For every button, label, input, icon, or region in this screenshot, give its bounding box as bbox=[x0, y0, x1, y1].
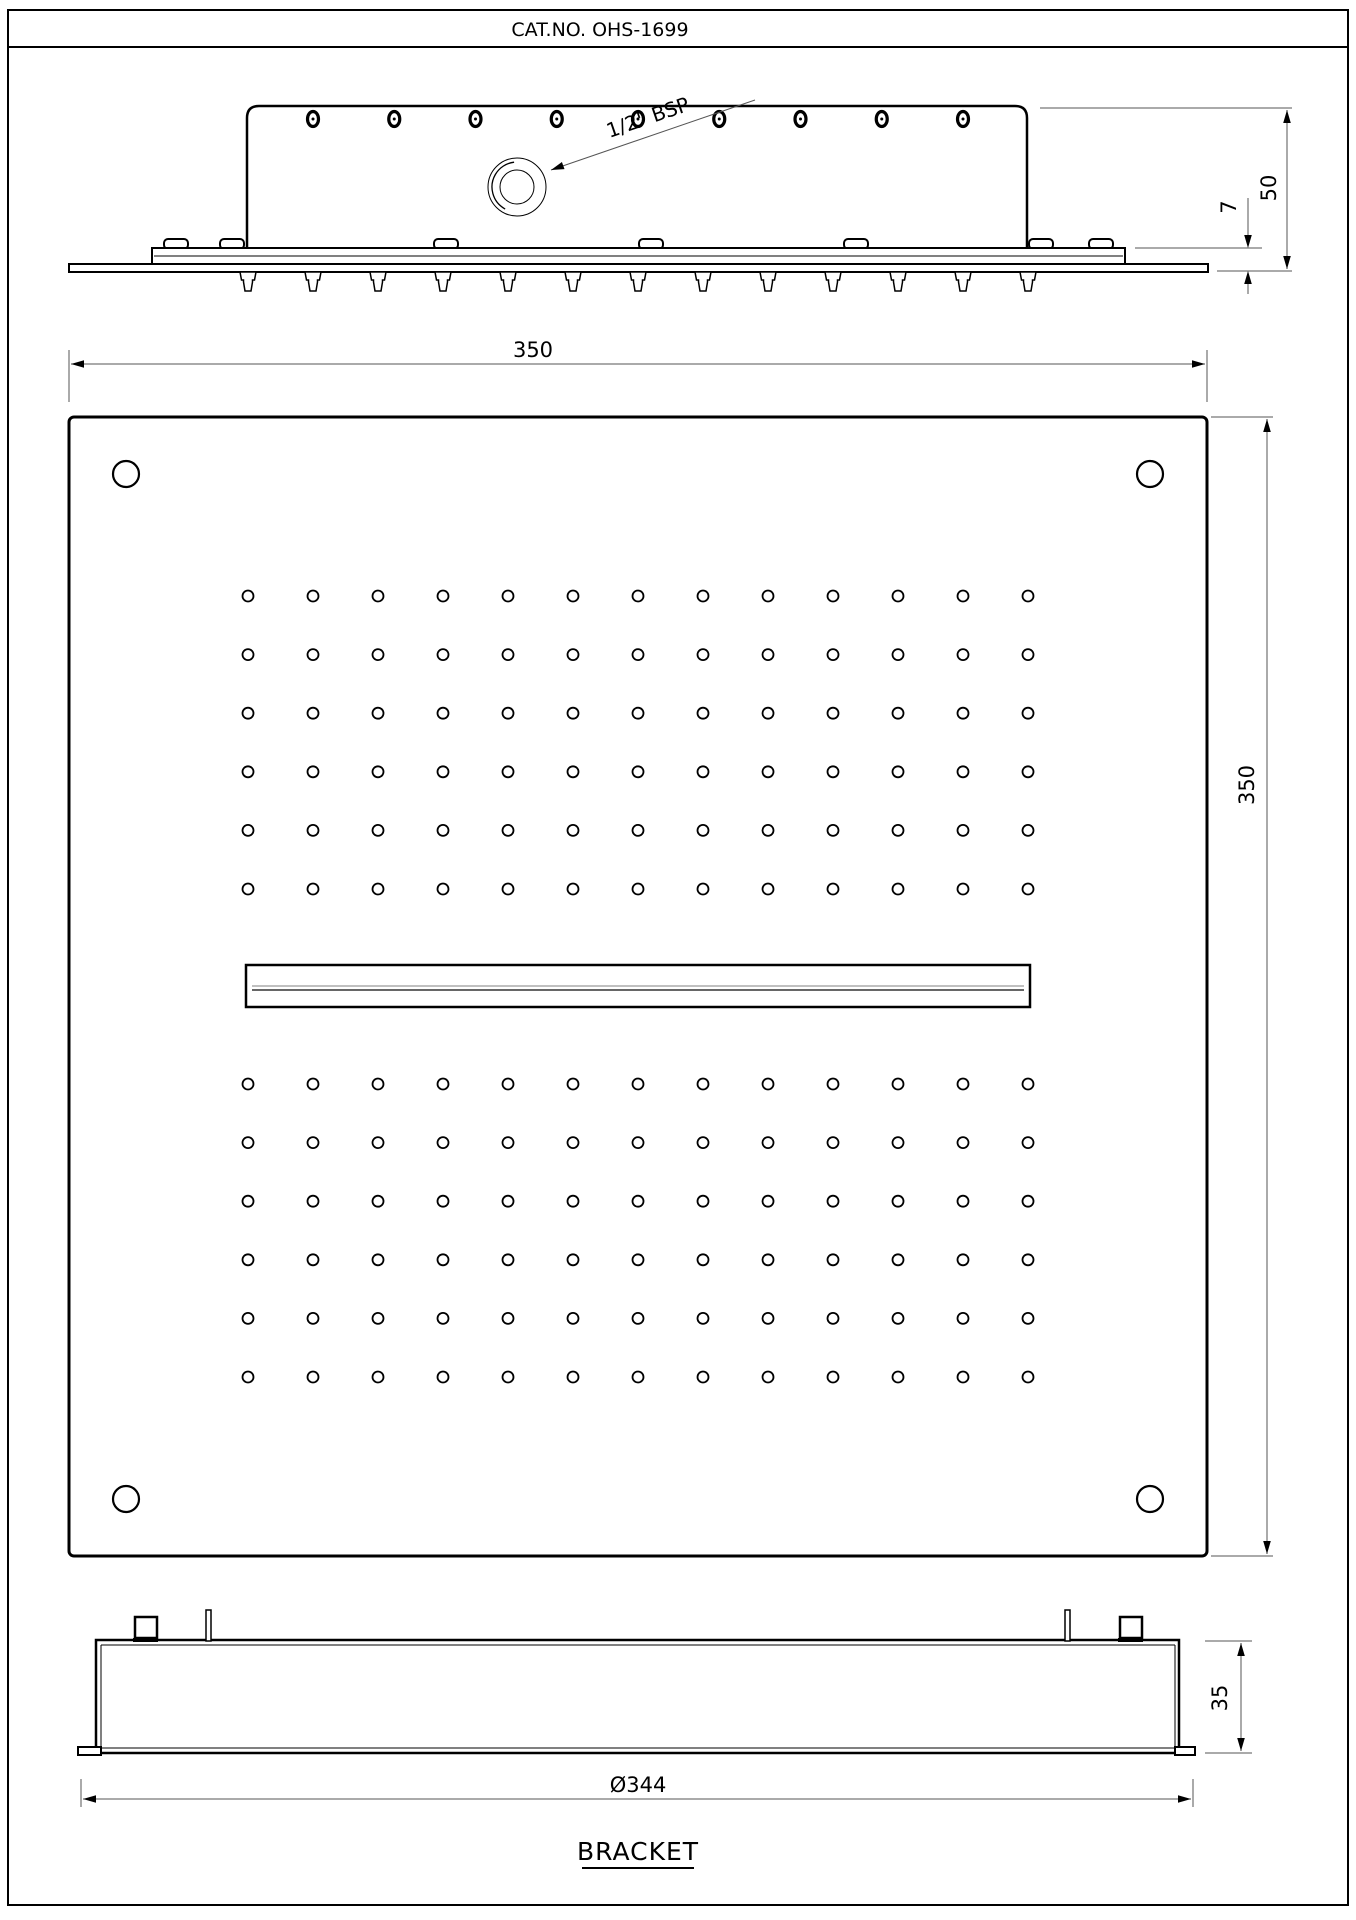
dimension-arrowhead bbox=[71, 360, 84, 368]
nozzle-hole bbox=[958, 766, 969, 777]
nozzle-hole bbox=[438, 649, 449, 660]
nozzle-hole bbox=[373, 591, 384, 602]
nozzle-hole bbox=[1023, 766, 1034, 777]
nozzle-hole bbox=[698, 1372, 709, 1383]
nozzle-profile bbox=[305, 272, 321, 291]
nozzle-hole bbox=[828, 649, 839, 660]
nozzle-hole bbox=[373, 708, 384, 719]
nozzle-profile bbox=[370, 272, 386, 291]
nozzle-hole bbox=[633, 766, 644, 777]
nozzle-hole bbox=[828, 766, 839, 777]
nozzle-hole bbox=[1023, 1079, 1034, 1090]
nozzle-hole bbox=[568, 591, 579, 602]
nozzle-hole bbox=[373, 1137, 384, 1148]
nozzle-hole bbox=[308, 1313, 319, 1324]
nozzle-hole bbox=[633, 825, 644, 836]
nozzle-hole bbox=[243, 1313, 254, 1324]
nozzle-hole bbox=[438, 825, 449, 836]
nozzle-hole bbox=[958, 591, 969, 602]
nozzle-row bbox=[240, 272, 1036, 291]
nozzle-hole bbox=[633, 1196, 644, 1207]
dimension-arrowhead bbox=[1244, 271, 1252, 284]
plan-height-dimension: 350 bbox=[1211, 417, 1273, 1556]
nozzle-hole bbox=[893, 766, 904, 777]
nozzle-profile bbox=[565, 272, 581, 291]
nozzle-hole bbox=[568, 766, 579, 777]
nozzle-hole bbox=[828, 825, 839, 836]
nozzle-hole bbox=[763, 708, 774, 719]
bracket-view: 35 Ø344 BRACKET bbox=[78, 1610, 1252, 1868]
nozzle-hole bbox=[373, 1372, 384, 1383]
nozzle-hole bbox=[828, 1079, 839, 1090]
nozzle-hole bbox=[373, 1196, 384, 1207]
nozzle-hole bbox=[503, 591, 514, 602]
dimension-arrowhead bbox=[1244, 235, 1252, 248]
dimension-arrowhead bbox=[1192, 360, 1205, 368]
nozzle-hole bbox=[568, 1137, 579, 1148]
bracket-right-block bbox=[1120, 1617, 1142, 1638]
nozzle-hole bbox=[828, 708, 839, 719]
nozzle-hole bbox=[763, 1079, 774, 1090]
nozzle-hole bbox=[308, 884, 319, 895]
nozzle-profile bbox=[955, 272, 971, 291]
nozzle-hole bbox=[763, 884, 774, 895]
nozzle-hole bbox=[243, 884, 254, 895]
nozzle-hole bbox=[503, 1196, 514, 1207]
nozzle-hole bbox=[633, 1079, 644, 1090]
nozzle-hole bbox=[568, 884, 579, 895]
nozzle-profile bbox=[695, 272, 711, 291]
mounting-slot-center bbox=[718, 118, 721, 121]
nozzle-hole bbox=[568, 1254, 579, 1265]
nozzle-hole bbox=[503, 1079, 514, 1090]
dim-text-dia344: Ø344 bbox=[610, 1773, 667, 1797]
nozzle-hole bbox=[308, 1079, 319, 1090]
nozzle-hole bbox=[763, 1137, 774, 1148]
nozzle-profile bbox=[435, 272, 451, 291]
nozzle-hole bbox=[828, 1313, 839, 1324]
nozzle-hole bbox=[633, 1372, 644, 1383]
dimension-arrowhead bbox=[83, 1795, 96, 1803]
nozzle-hole bbox=[958, 649, 969, 660]
nozzle-hole bbox=[698, 766, 709, 777]
dim-text-50: 50 bbox=[1257, 175, 1281, 202]
nozzle-hole bbox=[373, 1254, 384, 1265]
nozzle-hole bbox=[243, 766, 254, 777]
nozzle-hole bbox=[568, 649, 579, 660]
nozzle-hole bbox=[438, 708, 449, 719]
nozzle-hole bbox=[243, 1079, 254, 1090]
nozzle-hole bbox=[308, 708, 319, 719]
nozzle-hole bbox=[373, 766, 384, 777]
dimension-arrowhead bbox=[1237, 1643, 1245, 1656]
dimension-arrowhead bbox=[1263, 1541, 1271, 1554]
corner-screw-hole bbox=[113, 461, 139, 487]
nozzle-hole bbox=[308, 1196, 319, 1207]
nozzle-profile bbox=[825, 272, 841, 291]
mounting-slot-center bbox=[474, 118, 477, 121]
bracket-caption: BRACKET bbox=[577, 1837, 699, 1866]
nozzle-profile bbox=[630, 272, 646, 291]
dim-text-35: 35 bbox=[1208, 1685, 1232, 1712]
nozzle-hole bbox=[958, 1196, 969, 1207]
nozzle-hole bbox=[698, 591, 709, 602]
mounting-slot-center bbox=[880, 118, 883, 121]
nozzle-hole bbox=[1023, 1372, 1034, 1383]
dimension-arrowhead bbox=[1283, 110, 1291, 123]
nozzle-hole bbox=[503, 1254, 514, 1265]
nozzle-hole bbox=[1023, 1313, 1034, 1324]
bracket-right-pin bbox=[1065, 1610, 1070, 1641]
nozzle-hole bbox=[698, 1079, 709, 1090]
nozzle-hole bbox=[568, 1079, 579, 1090]
mounting-slot-center bbox=[555, 118, 558, 121]
nozzle-hole bbox=[958, 1372, 969, 1383]
nozzle-hole bbox=[438, 1137, 449, 1148]
nozzle-hole bbox=[568, 1313, 579, 1324]
nozzle-hole bbox=[698, 1313, 709, 1324]
mounting-slot-center bbox=[393, 118, 396, 121]
nozzle-hole bbox=[503, 884, 514, 895]
face-plate bbox=[69, 264, 1208, 272]
nozzle-hole bbox=[308, 766, 319, 777]
nozzle-hole bbox=[438, 1313, 449, 1324]
nozzle-profile bbox=[240, 272, 256, 291]
nozzle-hole bbox=[1023, 884, 1034, 895]
nozzle-hole bbox=[698, 1196, 709, 1207]
dimension-arrowhead bbox=[1263, 419, 1271, 432]
nozzle-hole bbox=[828, 1137, 839, 1148]
nozzle-hole bbox=[503, 766, 514, 777]
nozzle-profile bbox=[760, 272, 776, 291]
nozzle-hole bbox=[308, 649, 319, 660]
nozzle-hole bbox=[893, 1313, 904, 1324]
waterfall-slot bbox=[246, 965, 1030, 1007]
nozzle-hole bbox=[568, 708, 579, 719]
nozzle-hole bbox=[373, 825, 384, 836]
nozzle-hole bbox=[763, 1313, 774, 1324]
plan-width-dimension: 350 bbox=[69, 338, 1207, 402]
nozzle-hole bbox=[308, 825, 319, 836]
nozzle-profile bbox=[890, 272, 906, 291]
nozzle-hole bbox=[828, 1254, 839, 1265]
nozzle-hole bbox=[1023, 825, 1034, 836]
bracket-left-pin bbox=[206, 1610, 211, 1641]
nozzle-hole bbox=[698, 1254, 709, 1265]
dim-text-7: 7 bbox=[1217, 200, 1241, 213]
dimension-arrowhead bbox=[1178, 1795, 1191, 1803]
nozzle-hole bbox=[1023, 708, 1034, 719]
nozzle-hole bbox=[633, 1254, 644, 1265]
nozzle-hole bbox=[308, 1372, 319, 1383]
nozzle-hole bbox=[958, 1137, 969, 1148]
nozzle-hole bbox=[503, 1372, 514, 1383]
nozzle-hole bbox=[243, 591, 254, 602]
nozzle-hole bbox=[503, 825, 514, 836]
nozzle-hole bbox=[308, 1137, 319, 1148]
nozzle-hole bbox=[1023, 649, 1034, 660]
nozzle-hole bbox=[633, 708, 644, 719]
nozzle-hole bbox=[243, 1137, 254, 1148]
nozzle-hole bbox=[243, 649, 254, 660]
nozzle-hole bbox=[243, 1254, 254, 1265]
nozzle-hole bbox=[438, 1254, 449, 1265]
nozzle-hole bbox=[958, 708, 969, 719]
nozzle-hole bbox=[1023, 1254, 1034, 1265]
nozzle-hole bbox=[633, 649, 644, 660]
nozzle-hole bbox=[438, 1079, 449, 1090]
nozzle-hole bbox=[373, 649, 384, 660]
nozzle-hole bbox=[633, 884, 644, 895]
nozzle-hole bbox=[373, 1079, 384, 1090]
nozzle-profile bbox=[1020, 272, 1036, 291]
nozzle-hole bbox=[698, 825, 709, 836]
nozzle-hole bbox=[438, 884, 449, 895]
nozzle-hole bbox=[893, 649, 904, 660]
nozzle-hole bbox=[1023, 1196, 1034, 1207]
nozzle-hole bbox=[1023, 1137, 1034, 1148]
nozzle-hole bbox=[308, 591, 319, 602]
bracket-height-dimension: 35 bbox=[1205, 1641, 1252, 1753]
nozzle-hole bbox=[698, 649, 709, 660]
nozzle-hole bbox=[633, 591, 644, 602]
nozzle-hole bbox=[763, 1372, 774, 1383]
nozzle-hole bbox=[373, 884, 384, 895]
nozzle-hole bbox=[958, 1313, 969, 1324]
dimension-arrowhead bbox=[1237, 1738, 1245, 1751]
corner-screw-hole bbox=[1137, 1486, 1163, 1512]
nozzle-hole bbox=[828, 1372, 839, 1383]
corner-screw-hole bbox=[1137, 461, 1163, 487]
nozzle-hole bbox=[893, 708, 904, 719]
mounting-slot-center bbox=[962, 118, 965, 121]
nozzle-hole bbox=[893, 1137, 904, 1148]
dimension-arrowhead bbox=[1283, 256, 1291, 269]
dim-text-height: 350 bbox=[1235, 765, 1259, 805]
nozzle-hole bbox=[1023, 591, 1034, 602]
nozzle-hole bbox=[438, 766, 449, 777]
nozzle-hole bbox=[828, 884, 839, 895]
corner-screw-hole bbox=[113, 1486, 139, 1512]
bracket-left-block bbox=[135, 1617, 157, 1638]
mounting-slot-center bbox=[799, 118, 802, 121]
nozzle-hole bbox=[893, 1254, 904, 1265]
nozzle-hole bbox=[893, 825, 904, 836]
nozzle-hole bbox=[828, 591, 839, 602]
nozzle-hole bbox=[698, 708, 709, 719]
nozzle-hole bbox=[503, 1137, 514, 1148]
nozzle-hole bbox=[763, 766, 774, 777]
nozzle-hole bbox=[893, 1372, 904, 1383]
drawing-sheet: CAT.NO. OHS-1699 1/2" BSP 50 7 bbox=[0, 0, 1356, 1920]
nozzle-hole bbox=[893, 1196, 904, 1207]
bracket-left-block-flange bbox=[133, 1638, 158, 1642]
nozzle-hole bbox=[893, 1079, 904, 1090]
nozzle-hole bbox=[958, 825, 969, 836]
nozzle-hole bbox=[958, 1254, 969, 1265]
nozzle-hole bbox=[568, 825, 579, 836]
nozzle-hole bbox=[633, 1137, 644, 1148]
nozzle-hole bbox=[503, 1313, 514, 1324]
nozzle-hole bbox=[828, 1196, 839, 1207]
nozzle-hole bbox=[438, 1372, 449, 1383]
bracket-diameter-dimension: Ø344 bbox=[81, 1773, 1193, 1807]
mounting-slot-center bbox=[312, 118, 315, 121]
bracket-right-block-flange bbox=[1118, 1638, 1143, 1642]
nozzle-hole bbox=[763, 591, 774, 602]
nozzle-hole bbox=[763, 825, 774, 836]
nozzle-hole bbox=[373, 1313, 384, 1324]
bracket-channel-outline bbox=[96, 1640, 1179, 1753]
dim-text-width: 350 bbox=[513, 338, 553, 362]
technical-drawing: CAT.NO. OHS-1699 1/2" BSP 50 7 bbox=[0, 0, 1356, 1920]
nozzle-hole bbox=[698, 884, 709, 895]
nozzle-hole bbox=[503, 708, 514, 719]
nozzle-hole bbox=[633, 1313, 644, 1324]
nozzle-hole bbox=[243, 1196, 254, 1207]
catalog-number-title: CAT.NO. OHS-1699 bbox=[511, 19, 688, 41]
nozzle-hole bbox=[308, 1254, 319, 1265]
nozzle-hole bbox=[893, 884, 904, 895]
bracket-right-foot bbox=[1175, 1747, 1195, 1755]
nozzle-hole bbox=[243, 1372, 254, 1383]
nozzle-hole bbox=[763, 649, 774, 660]
nozzle-hole bbox=[958, 1079, 969, 1090]
nozzle-hole bbox=[568, 1372, 579, 1383]
nozzle-hole bbox=[763, 1196, 774, 1207]
nozzle-hole bbox=[763, 1254, 774, 1265]
nozzle-hole bbox=[568, 1196, 579, 1207]
nozzle-hole bbox=[698, 1137, 709, 1148]
nozzle-hole bbox=[243, 708, 254, 719]
plan-view: 350 350 bbox=[69, 338, 1273, 1556]
side-view: 1/2" BSP 50 7 bbox=[69, 92, 1292, 294]
nozzle-hole bbox=[958, 884, 969, 895]
nozzle-hole bbox=[438, 591, 449, 602]
nozzle-hole bbox=[438, 1196, 449, 1207]
nozzle-hole bbox=[893, 591, 904, 602]
nozzle-hole bbox=[243, 825, 254, 836]
nozzle-hole bbox=[503, 649, 514, 660]
nozzle-profile bbox=[500, 272, 516, 291]
bracket-left-foot bbox=[78, 1747, 101, 1755]
